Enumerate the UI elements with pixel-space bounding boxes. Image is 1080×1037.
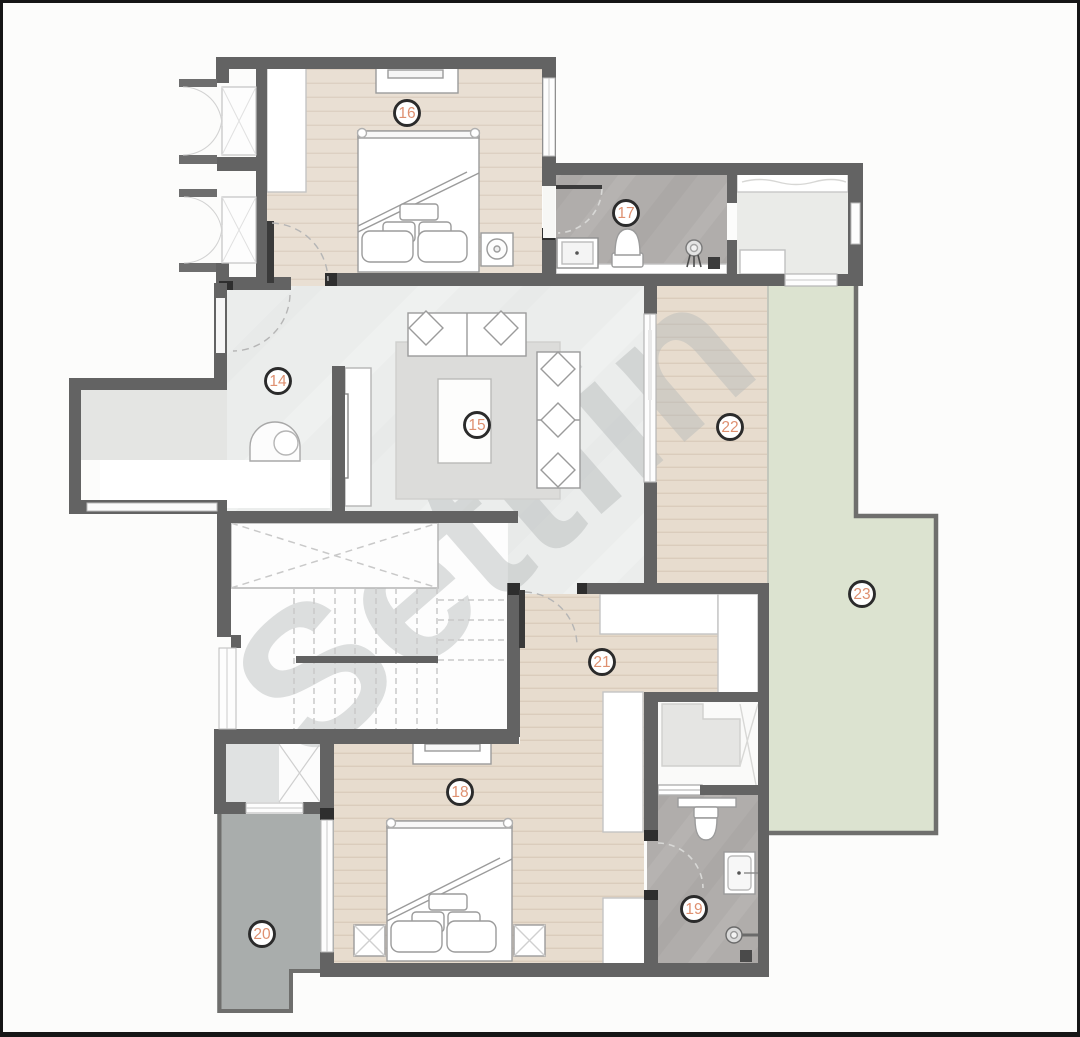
- svg-text:17: 17: [617, 205, 634, 222]
- svg-text:22: 22: [721, 419, 738, 436]
- svg-text:16: 16: [398, 105, 415, 122]
- svg-text:19: 19: [685, 901, 702, 918]
- svg-text:15: 15: [468, 417, 485, 434]
- svg-text:20: 20: [253, 926, 271, 943]
- svg-text:21: 21: [593, 654, 610, 671]
- svg-text:23: 23: [853, 586, 870, 603]
- svg-text:14: 14: [269, 373, 287, 390]
- svg-text:18: 18: [451, 784, 468, 801]
